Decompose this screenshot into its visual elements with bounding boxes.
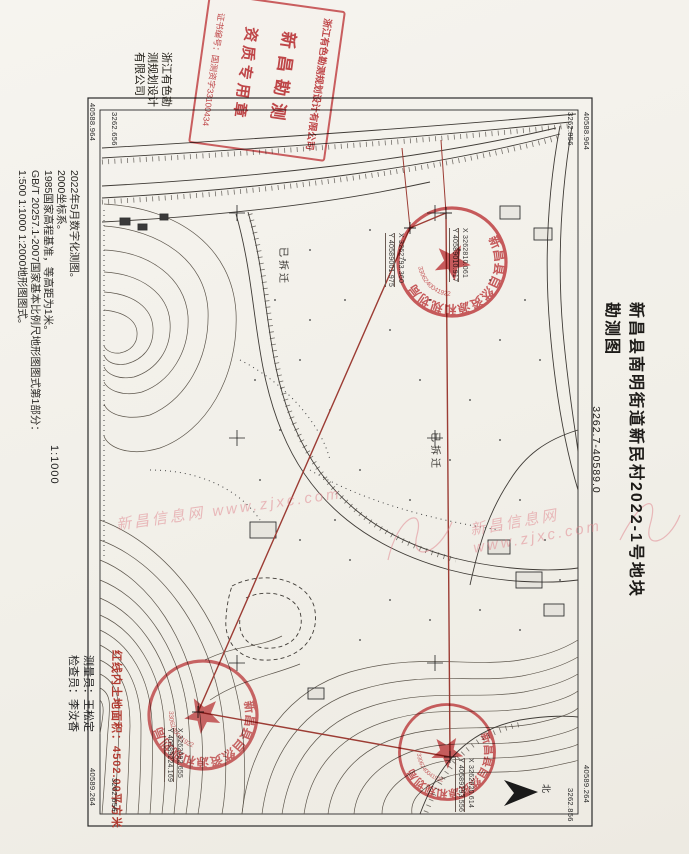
frame-label-br-outer: 40589.264 [582, 765, 591, 803]
note-line: GB/T 20257.1-2007国家基本比例尺地形图图式第1部分： [28, 170, 41, 470]
frame-label-bl-outer: 40589.264 [88, 768, 97, 806]
demolished-label: 已拆迁 [277, 247, 292, 286]
stamp-certificate-line: 证书编号：国测资字33100434 [200, 12, 228, 127]
frame-label-tr-inner: 3262.856 [566, 112, 575, 146]
seal-star-icon [181, 692, 227, 739]
stamp-name-line: 新昌勘测 [265, 30, 303, 129]
north-label: 北 [540, 784, 553, 793]
page-title: 新昌县南明街道新民村2022-1号地块勘测图 [602, 302, 650, 598]
frame-label-tl-inner: 3262.656 [110, 112, 119, 146]
qualification-stamp: 浙江有色勘测规划设计有限公司 新昌勘测 资质专用章 证书编号：国测资字33100… [188, 0, 346, 162]
frame-label-br-inner: 3262.856 [566, 788, 575, 822]
frame-label-tl-outer: 40588.964 [88, 103, 97, 141]
sheet-title-block: 新昌县南明街道新民村2022-1号地块勘测图 3262.7-40589.0 [590, 302, 650, 598]
note-line: 1985国家高程基准，等高距为1米。 [41, 170, 54, 470]
note-line: 2022年5月数字化测图。 [67, 170, 80, 470]
company-name-margin: 浙江有色勘测规划设计有限公司 [132, 52, 173, 116]
survey-notes: 2022年5月数字化测图。 2000坐标系。 1985国家高程基准，等高距为1米… [15, 170, 80, 470]
frame-label-bl-inner: 3262.656 [110, 778, 119, 812]
demolished-label: 已拆迁 [429, 432, 444, 471]
note-line: 1:500 1:1000 1:2000地形图图式。 [15, 170, 28, 470]
frame-label-tr-outer: 40588.964 [582, 112, 591, 150]
seal-star-icon [430, 733, 467, 772]
sheet-index-number: 3262.7-40589.0 [590, 302, 602, 598]
stamp-type-line: 资质专用章 [229, 25, 263, 122]
seal-star-icon [434, 242, 474, 284]
north-arrow [504, 780, 538, 806]
checker-name: 检查员：李汝香 [65, 655, 80, 787]
official-round-seal: 新昌县自然资源和规划局 3306240041922 [385, 195, 519, 329]
note-line: 2000坐标系。 [54, 170, 67, 470]
map-scale: 1:1000 [48, 445, 60, 485]
